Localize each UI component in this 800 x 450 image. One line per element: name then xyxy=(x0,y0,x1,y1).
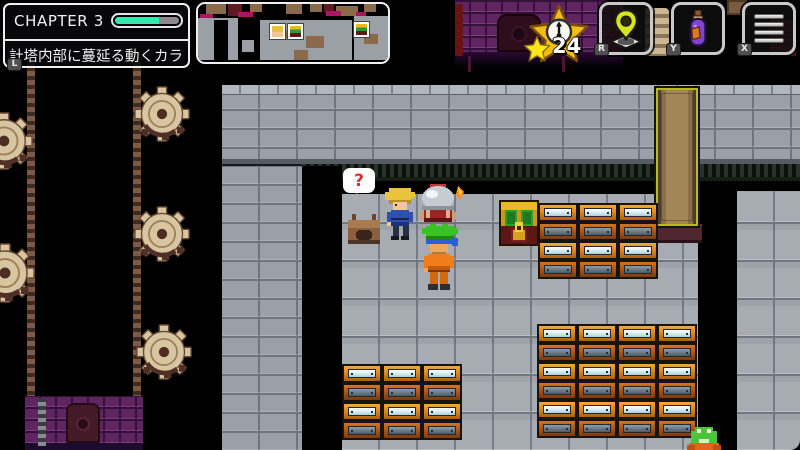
file-cabinet xyxy=(537,400,577,438)
file-cabinet xyxy=(342,402,382,440)
map-pin-icon xyxy=(607,8,645,50)
hint-key-l[interactable]: L xyxy=(7,58,22,71)
hero-carrying-machine xyxy=(418,184,466,296)
file-cabinet xyxy=(617,400,657,438)
hint-key-y: Y xyxy=(666,43,681,56)
file-cabinet xyxy=(577,324,617,362)
file-cabinet xyxy=(657,324,697,362)
potion-button[interactable]: Y xyxy=(671,2,725,55)
file-cabinet xyxy=(538,203,578,241)
map-button[interactable]: R xyxy=(599,2,653,55)
star-count: 24 xyxy=(552,34,581,58)
chapter-panel[interactable]: CHAPTER 3 計塔内部に蔓延る動くカラ L xyxy=(3,3,190,68)
blonde-npc xyxy=(381,186,419,240)
file-cabinet xyxy=(618,203,658,241)
chapter-title: CHAPTER 3 xyxy=(14,12,104,30)
objective-text: 計塔内部に蔓延る動くカラ xyxy=(9,45,186,66)
game-screen[interactable]: ? CHAPTER 3 計塔内部に蔓延る動くカラ L xyxy=(0,0,800,450)
hint-key-r: R xyxy=(594,43,609,56)
file-cabinet xyxy=(537,324,577,362)
small-star-icon xyxy=(524,36,550,62)
star-counter: 24 xyxy=(522,2,598,66)
file-cabinet xyxy=(422,402,462,440)
file-cabinet xyxy=(537,362,577,400)
file-cabinet xyxy=(618,241,658,279)
file-cabinet xyxy=(342,364,382,402)
chapter-progress-bar xyxy=(111,13,183,28)
file-cabinet xyxy=(657,362,697,400)
file-cabinet xyxy=(617,362,657,400)
file-cabinet xyxy=(578,203,618,241)
menu-button[interactable]: X xyxy=(742,2,796,55)
minimap-player-marker xyxy=(270,24,285,39)
progress-track xyxy=(115,17,179,24)
file-cabinet xyxy=(577,362,617,400)
hint-key-x: X xyxy=(737,43,752,56)
question-mark: ? xyxy=(354,171,364,191)
file-cabinet xyxy=(538,241,578,279)
divider xyxy=(5,39,188,41)
minimap-chest-marker xyxy=(288,24,303,39)
file-cabinet xyxy=(578,241,618,279)
file-cabinet xyxy=(617,324,657,362)
speech-bubble: ? xyxy=(343,168,375,193)
menu-bars-icon xyxy=(754,14,784,43)
file-cabinet xyxy=(382,364,422,402)
file-cabinet xyxy=(382,402,422,440)
file-cabinet xyxy=(422,364,462,402)
progress-fill xyxy=(115,17,159,24)
potion-icon xyxy=(686,10,710,48)
file-cabinet xyxy=(577,400,617,438)
small-stove xyxy=(346,214,382,246)
minimap-chest-marker xyxy=(354,22,369,37)
minimap[interactable] xyxy=(196,2,390,64)
frog-creature xyxy=(687,427,721,450)
